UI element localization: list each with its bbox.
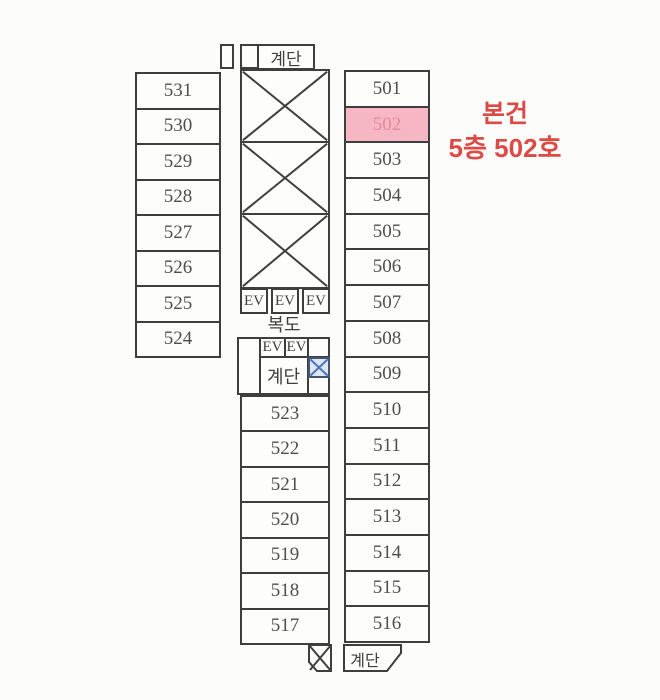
room-cell-525: 525	[135, 285, 221, 323]
annotation-line1: 본건	[430, 98, 580, 130]
blue-x-icon	[310, 359, 328, 376]
subject-annotation: 본건 5층 502호	[430, 98, 580, 166]
room-cell-530: 530	[135, 108, 221, 146]
room-cell-503: 503	[344, 141, 430, 179]
room-cell-523: 523	[240, 395, 330, 432]
room-cell-516: 516	[344, 605, 430, 643]
room-cell-505: 505	[344, 213, 430, 251]
room-cell-513: 513	[344, 498, 430, 536]
room-cell-510: 510	[344, 391, 430, 429]
elevator-cell: EV	[240, 288, 268, 314]
shaft-x-icon	[242, 215, 328, 287]
room-cell-518: 518	[240, 572, 330, 609]
stair-mid-label: 계단	[259, 358, 308, 393]
shaft-x-icon	[242, 143, 328, 213]
elevator-label: EV	[261, 338, 284, 356]
floor-plan: 계단 EV EV EV 복도 EV EV 계단 5315305295285275…	[0, 0, 660, 700]
room-cell-514: 514	[344, 534, 430, 572]
room-cell-504: 504	[344, 177, 430, 215]
room-cell-511: 511	[344, 427, 430, 465]
room-cell-526: 526	[135, 250, 221, 288]
stair-top-side-cell	[220, 44, 234, 69]
stair-top-label: 계단	[270, 45, 301, 70]
room-cell-531: 531	[135, 72, 221, 110]
room-cell-507: 507	[344, 284, 430, 322]
room-cell-502: 502	[344, 106, 430, 144]
room-cell-506: 506	[344, 248, 430, 286]
room-cell-501: 501	[344, 70, 430, 108]
annotation-line2: 5층 502호	[430, 130, 580, 166]
elevator-cell: EV	[302, 288, 330, 314]
room-cell-508: 508	[344, 320, 430, 358]
mid-x-hatch	[308, 357, 330, 378]
room-cell-529: 529	[135, 143, 221, 181]
corridor-label: 복도	[244, 312, 324, 336]
room-cell-515: 515	[344, 570, 430, 608]
room-cell-528: 528	[135, 179, 221, 217]
elevator-shaft-cell	[240, 69, 330, 143]
elevator-label: EV	[306, 293, 326, 310]
room-cell-522: 522	[240, 430, 330, 467]
room-cell-524: 524	[135, 321, 221, 359]
room-cell-509: 509	[344, 356, 430, 394]
elevator-label: EV	[275, 293, 295, 310]
elevator-label: EV	[244, 293, 264, 310]
stair-top-box: 계단	[257, 44, 315, 70]
room-cell-512: 512	[344, 463, 430, 501]
elevator-shaft-cell	[240, 141, 330, 215]
elevator-shaft-cell	[240, 213, 330, 289]
stair-bottom-label: 계단	[342, 649, 388, 669]
shaft-x-icon	[242, 71, 328, 141]
room-cell-520: 520	[240, 501, 330, 538]
elevator-label: EV	[286, 338, 307, 356]
room-cell-521: 521	[240, 466, 330, 503]
room-cell-519: 519	[240, 537, 330, 574]
room-cell-527: 527	[135, 214, 221, 252]
